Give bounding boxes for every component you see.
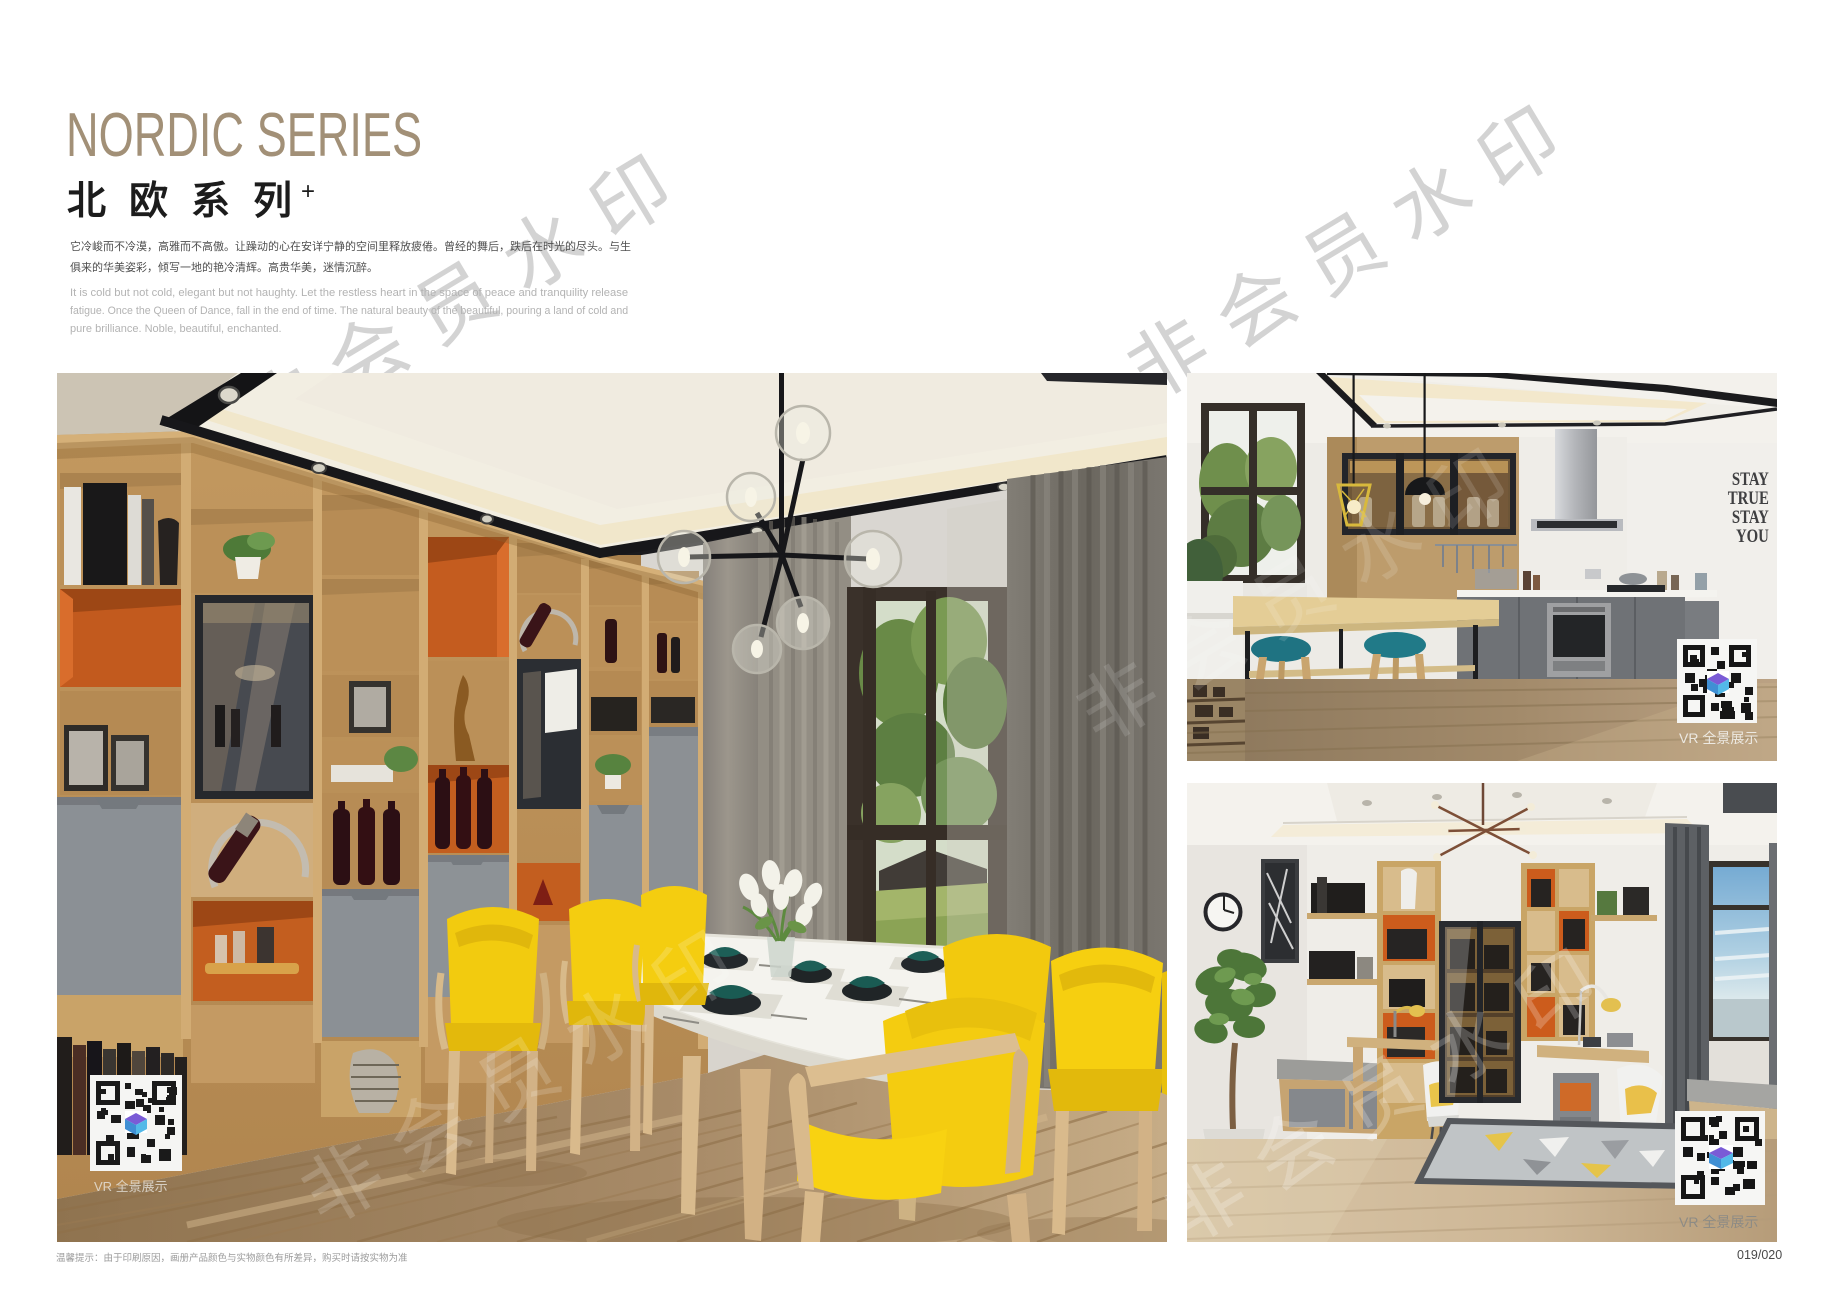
svg-text:VR 全景展示: VR 全景展示: [94, 1179, 168, 1194]
svg-text:YOU: YOU: [1736, 525, 1769, 546]
svg-text:VR 全景展示: VR 全景展示: [1679, 1214, 1758, 1230]
svg-text:VR 全景展示: VR 全景展示: [1679, 730, 1758, 746]
